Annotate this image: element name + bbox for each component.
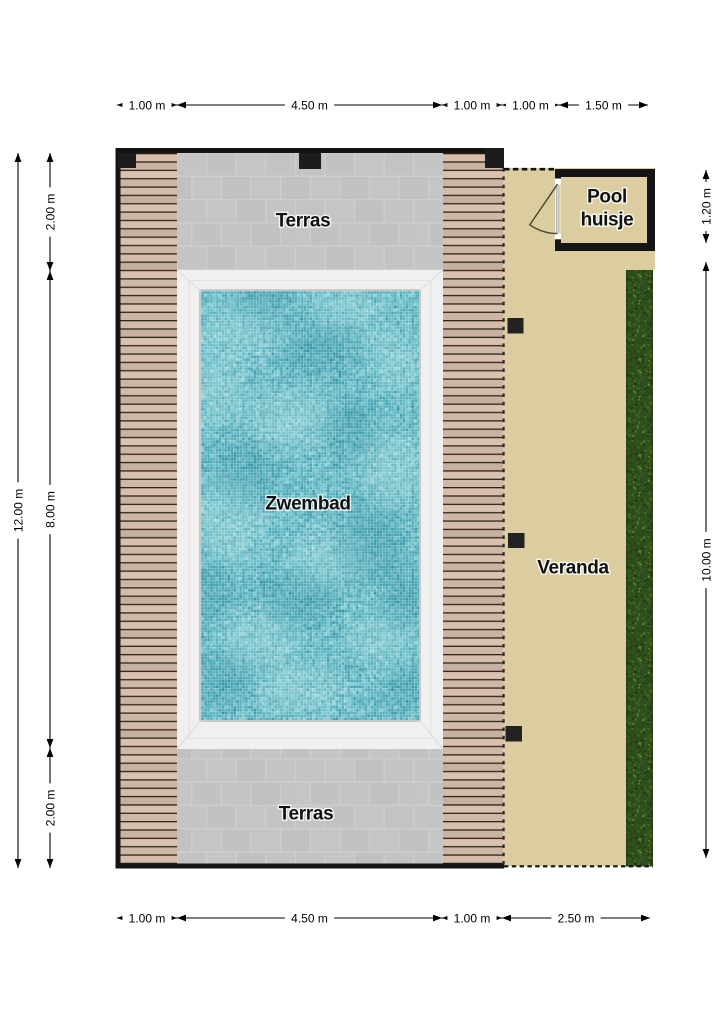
svg-text:1.00 m: 1.00 m xyxy=(129,911,166,925)
svg-text:4.50 m: 4.50 m xyxy=(291,911,328,925)
svg-text:2.00 m: 2.00 m xyxy=(43,194,57,231)
svg-text:Zwembad: Zwembad xyxy=(265,494,350,515)
svg-text:2.00 m: 2.00 m xyxy=(43,790,57,827)
svg-text:1.50 m: 1.50 m xyxy=(585,98,622,112)
svg-text:Terras: Terras xyxy=(279,804,334,825)
svg-text:Terras: Terras xyxy=(276,211,331,232)
svg-text:1.00 m: 1.00 m xyxy=(454,98,491,112)
svg-text:huisje: huisje xyxy=(581,210,634,231)
svg-text:1.00 m: 1.00 m xyxy=(129,98,166,112)
svg-text:2.50 m: 2.50 m xyxy=(558,911,595,925)
svg-text:1.20 m: 1.20 m xyxy=(699,188,713,225)
svg-text:Veranda: Veranda xyxy=(537,558,609,579)
svg-text:12.00 m: 12.00 m xyxy=(11,489,25,532)
svg-text:Pool: Pool xyxy=(587,187,627,208)
svg-text:1.00 m: 1.00 m xyxy=(512,98,549,112)
svg-text:8.00 m: 8.00 m xyxy=(43,491,57,528)
svg-text:4.50 m: 4.50 m xyxy=(291,98,328,112)
svg-text:1.00 m: 1.00 m xyxy=(454,911,491,925)
svg-text:10.00 m: 10.00 m xyxy=(699,538,713,581)
